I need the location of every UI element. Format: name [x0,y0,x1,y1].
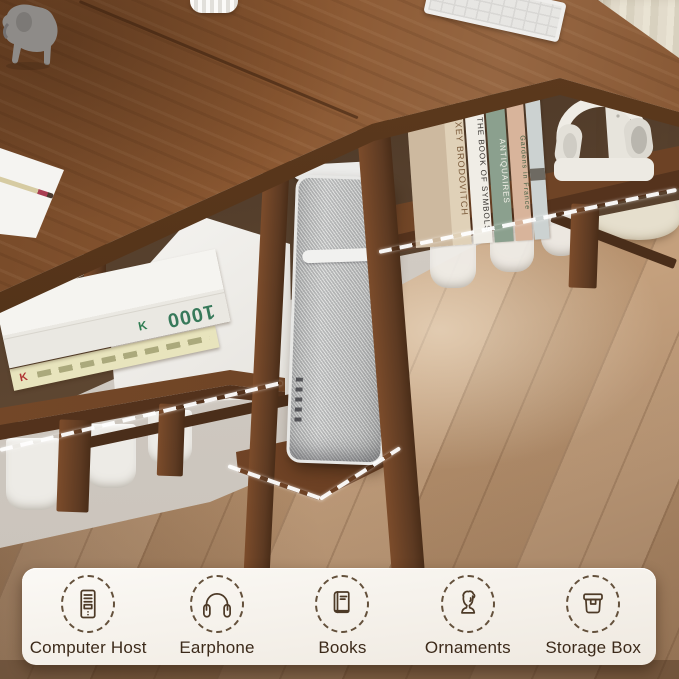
feature-label: Earphone [179,638,254,658]
earphone-icon [199,586,235,622]
dashed-circle [315,575,369,633]
books-icon [324,586,360,622]
computer-host-icon [70,586,106,622]
feature-label: Books [318,638,366,658]
publisher-mark: K [137,318,148,333]
dashed-circle [566,575,620,633]
feature-ornaments: Ornaments [413,575,523,658]
product-photo: K 1000 K ALEXEY BRODOVITCH THE BOOK OF S… [0,0,679,679]
vase [190,0,238,13]
publisher-mark: K [18,371,28,384]
feature-label: Storage Box [545,638,641,658]
dashed-circle [190,575,244,633]
dashed-circle [441,575,495,633]
feature-label: Computer Host [30,638,147,658]
feature-books: Books [287,575,397,658]
elephant-figurine [0,0,62,97]
ornaments-icon [450,586,486,622]
feature-computer-host: Computer Host [30,575,147,658]
feature-label: Ornaments [425,638,511,658]
bench-leg [569,204,600,289]
pc-tower-ports [294,378,303,426]
dashed-circle [61,575,115,633]
storage-bin [6,438,60,510]
feature-storage-box: Storage Box [538,575,648,658]
feature-banner: Computer Host Earphone [22,568,656,665]
storage-box-icon [575,586,611,622]
feature-earphone: Earphone [162,575,272,658]
bench-leg [157,404,185,477]
